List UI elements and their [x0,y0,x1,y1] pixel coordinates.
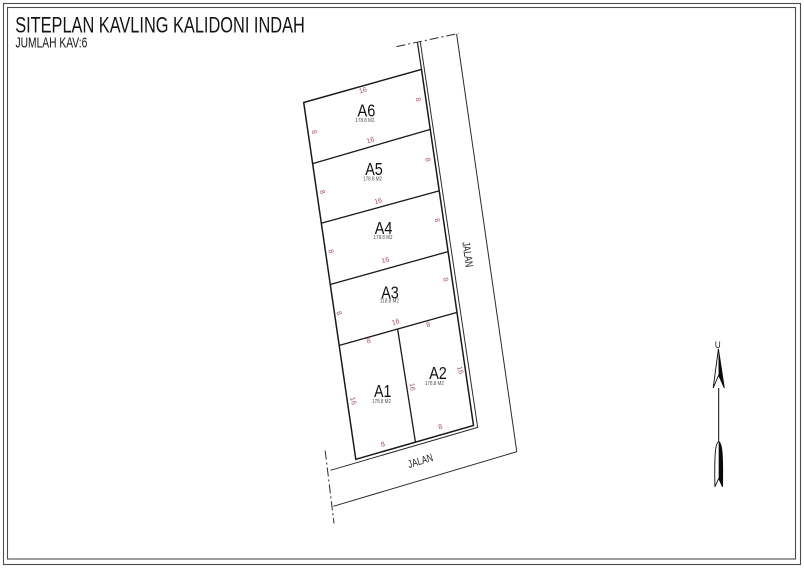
svg-text:178.8 M2: 178.8 M2 [363,177,382,183]
svg-text:U: U [715,340,721,350]
svg-text:178.8 M2: 178.8 M2 [372,399,391,405]
svg-text:178.8 M2: 178.8 M2 [374,235,393,241]
svg-text:118.8 M2: 118.8 M2 [380,298,399,304]
svg-text:SITEPLAN KAVLING KALIDONI INDA: SITEPLAN KAVLING KALIDONI INDAH [15,13,305,38]
svg-text:178.8 M2: 178.8 M2 [425,381,444,387]
svg-text:A2: A2 [429,363,447,383]
svg-text:178.8 M2: 178.8 M2 [355,118,374,124]
svg-text:16: 16 [407,383,415,392]
svg-text:JUMLAH KAV:6: JUMLAH KAV:6 [16,36,88,52]
